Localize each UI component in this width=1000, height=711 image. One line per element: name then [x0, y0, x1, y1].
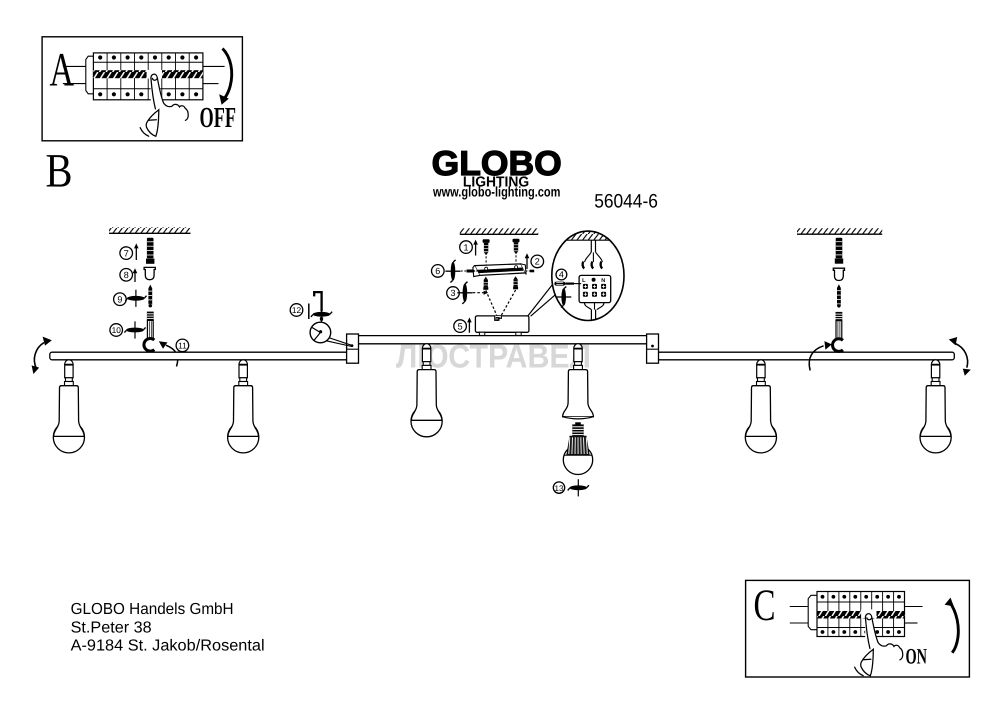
svg-text:GLOBO Handels GmbH: GLOBO Handels GmbH — [71, 601, 234, 618]
svg-text:3: 3 — [450, 288, 455, 298]
svg-text:OFF: OFF — [200, 102, 237, 134]
svg-text:13: 13 — [555, 484, 564, 493]
svg-text:2: 2 — [535, 257, 540, 267]
svg-text:B: B — [46, 145, 73, 198]
svg-text:C: C — [754, 580, 776, 630]
svg-text:5: 5 — [458, 321, 463, 331]
svg-text:N: N — [601, 278, 605, 284]
svg-text:11: 11 — [178, 341, 187, 351]
svg-text:6: 6 — [435, 266, 440, 276]
svg-text:8: 8 — [124, 270, 129, 280]
svg-text:7: 7 — [124, 248, 129, 258]
svg-text:St.Peter 38: St.Peter 38 — [71, 619, 152, 636]
svg-text:9: 9 — [117, 294, 122, 304]
svg-text:56044-6: 56044-6 — [594, 190, 658, 212]
svg-text:4: 4 — [559, 270, 564, 280]
svg-text:1: 1 — [463, 242, 468, 252]
svg-text:ON: ON — [906, 644, 928, 669]
svg-text:A-9184 St. Jakob/Rosental: A-9184 St. Jakob/Rosental — [71, 638, 265, 655]
svg-text:www.globo-lighting.com: www.globo-lighting.com — [432, 184, 560, 200]
svg-text:12: 12 — [292, 305, 302, 315]
svg-text:A: A — [50, 44, 75, 97]
svg-text:10: 10 — [112, 325, 122, 335]
